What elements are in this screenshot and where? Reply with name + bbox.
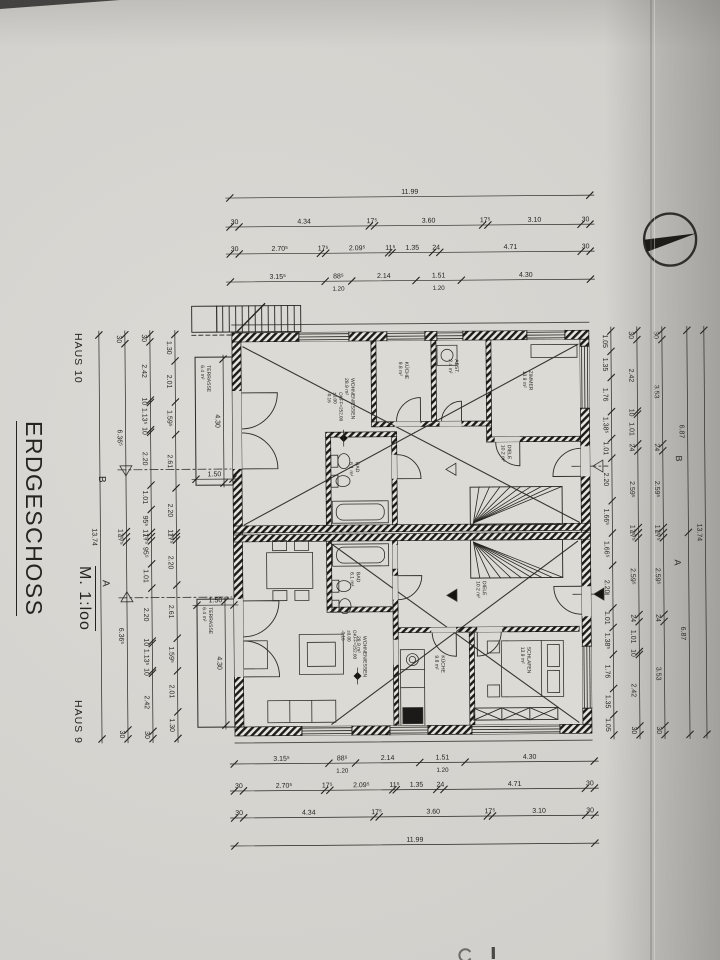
svg-text:1.20: 1.20 (332, 286, 345, 293)
svg-text:30: 30 (630, 727, 637, 735)
svg-text:10: 10 (627, 409, 634, 417)
section-arrow-a-right (594, 588, 604, 600)
svg-text:1.01: 1.01 (602, 442, 609, 456)
svg-text:3.10: 3.10 (528, 217, 542, 224)
svg-text:30: 30 (235, 810, 243, 817)
svg-text:6.1 m²: 6.1 m² (348, 462, 354, 477)
svg-text:1.01: 1.01 (629, 630, 636, 644)
svg-text:30: 30 (235, 783, 243, 790)
svg-text:10: 10 (142, 638, 149, 646)
svg-text:30: 30 (627, 331, 634, 339)
svg-text:1.35: 1.35 (410, 782, 424, 789)
svg-text:13.74: 13.74 (90, 528, 97, 546)
svg-text:3.60: 3.60 (422, 218, 436, 225)
svg-text:4.30: 4.30 (213, 414, 220, 428)
svg-text:TERRASSE: TERRASSE (205, 365, 211, 393)
svg-text:4.71: 4.71 (504, 244, 518, 251)
svg-text:10: 10 (140, 397, 147, 405)
svg-text:24: 24 (653, 443, 660, 451)
svg-text:24: 24 (432, 245, 440, 252)
north-arrow-icon (644, 213, 696, 265)
svg-text:1.30: 1.30 (168, 718, 175, 732)
svg-text:30: 30 (115, 335, 122, 343)
svg-text:DIELE: DIELE (481, 581, 487, 596)
svg-text:6.4 m²: 6.4 m² (201, 607, 207, 622)
svg-text:1.01: 1.01 (628, 422, 635, 436)
svg-text:95⁵: 95⁵ (141, 516, 148, 527)
svg-text:30: 30 (586, 780, 594, 787)
svg-text:24: 24 (654, 614, 661, 622)
svg-text:6.36⁵: 6.36⁵ (116, 429, 123, 446)
svg-text:1.05: 1.05 (601, 334, 608, 348)
svg-text:1.50: 1.50 (209, 597, 223, 604)
svg-text:3.15⁵: 3.15⁵ (269, 274, 286, 281)
svg-text:1.30: 1.30 (165, 341, 172, 355)
svg-text:2.59⁵: 2.59⁵ (653, 481, 660, 498)
svg-text:4.30: 4.30 (519, 272, 533, 279)
svg-text:10.2 m²: 10.2 m² (475, 581, 481, 598)
svg-text:10: 10 (141, 427, 148, 435)
svg-text:17⁵: 17⁵ (166, 533, 173, 544)
svg-text:17⁵: 17⁵ (141, 533, 148, 544)
svg-text:24: 24 (628, 444, 635, 452)
svg-text:30: 30 (140, 334, 147, 342)
svg-text:6.87: 6.87 (678, 425, 685, 439)
svg-text:2.59⁵: 2.59⁵ (628, 481, 635, 498)
svg-text:2.59⁵: 2.59⁵ (629, 568, 636, 585)
svg-text:11.99: 11.99 (401, 189, 418, 196)
svg-text:1.35: 1.35 (601, 358, 608, 372)
svg-text:1.66⁵: 1.66⁵ (602, 509, 609, 526)
svg-text:2.20: 2.20 (167, 556, 174, 570)
svg-text:2.01: 2.01 (165, 375, 172, 389)
svg-text:±0.00: ±0.00 (333, 392, 338, 404)
svg-text:-0.16: -0.16 (327, 392, 332, 403)
svg-text:1.13⁵: 1.13⁵ (142, 649, 149, 666)
svg-text:OKFF=252.00: OKFF=252.00 (338, 392, 343, 421)
svg-text:1.35: 1.35 (405, 245, 419, 252)
svg-text:2.59⁵: 2.59⁵ (654, 568, 661, 585)
svg-text:88⁵: 88⁵ (337, 755, 348, 762)
svg-text:1.35: 1.35 (604, 695, 611, 709)
svg-text:2.14: 2.14 (381, 755, 395, 762)
svg-text:ABST.: ABST. (453, 359, 459, 373)
svg-text:B: B (96, 476, 107, 483)
svg-text:30: 30 (582, 243, 590, 250)
svg-text:11.99: 11.99 (406, 837, 423, 844)
svg-text:2.09⁵: 2.09⁵ (349, 245, 366, 252)
svg-text:1.01: 1.01 (142, 569, 149, 583)
svg-text:2.61: 2.61 (167, 605, 174, 619)
svg-text:2.42: 2.42 (627, 369, 634, 383)
svg-text:ZIMMER: ZIMMER (527, 371, 533, 391)
external-stair (192, 303, 301, 335)
svg-text:6.4 m²: 6.4 m² (199, 365, 205, 380)
svg-text:24: 24 (436, 782, 444, 789)
svg-text:10.2 m²: 10.2 m² (500, 445, 506, 462)
svg-text:4.30: 4.30 (215, 656, 222, 670)
svg-text:OKFF=252.00: OKFF=252.00 (352, 630, 357, 659)
svg-text:2.61: 2.61 (166, 454, 173, 468)
svg-text:1.38⁵: 1.38⁵ (603, 633, 610, 650)
svg-text:30: 30 (655, 726, 662, 734)
svg-text:17⁵: 17⁵ (628, 530, 635, 541)
svg-text:2.14: 2.14 (377, 273, 391, 280)
svg-text:KÜCHE: KÜCHE (439, 655, 446, 673)
svg-text:9.8 m²: 9.8 m² (397, 362, 403, 377)
svg-text:DIELE: DIELE (506, 445, 512, 460)
svg-text:17⁵: 17⁵ (116, 534, 123, 545)
svg-text:BAD: BAD (354, 462, 360, 473)
svg-text:1.38⁵: 1.38⁵ (602, 417, 609, 434)
svg-text:3.53: 3.53 (652, 385, 659, 399)
svg-text:4.30: 4.30 (523, 754, 537, 761)
svg-text:2.42: 2.42 (140, 364, 147, 378)
page-edge-mark (459, 947, 495, 960)
svg-text:1.66⁵: 1.66⁵ (602, 541, 609, 558)
svg-text:2.4 m²: 2.4 m² (447, 359, 453, 374)
svg-text:30: 30 (586, 807, 594, 814)
svg-text:9.8 m²: 9.8 m² (433, 655, 439, 670)
svg-text:1.51: 1.51 (432, 273, 446, 280)
svg-text:BAD: BAD (355, 572, 361, 583)
svg-text:30: 30 (231, 219, 239, 226)
svg-text:KÜCHE: KÜCHE (403, 362, 410, 380)
svg-text:88⁵: 88⁵ (333, 273, 344, 280)
svg-text:2.70⁵: 2.70⁵ (276, 783, 293, 790)
svg-text:1.20: 1.20 (336, 768, 349, 775)
svg-text:6.87: 6.87 (679, 627, 686, 641)
svg-text:1.20: 1.20 (436, 767, 449, 774)
svg-text:24: 24 (629, 614, 636, 622)
svg-text:SCHLAFEN: SCHLAFEN (525, 647, 531, 674)
svg-text:2.20: 2.20 (142, 608, 149, 622)
svg-text:WOHNEN/ESSEN: WOHNEN/ESSEN (361, 636, 367, 678)
terraces (195, 357, 235, 727)
svg-text:2.42: 2.42 (143, 696, 150, 710)
svg-text:2.20: 2.20 (141, 452, 148, 466)
svg-text:95⁵: 95⁵ (142, 547, 149, 558)
floorplan-drawing: 11.99304.3417⁵3.6017⁵3.1030302.70⁵17⁵2.0… (0, 0, 720, 960)
svg-text:2.20: 2.20 (603, 580, 610, 594)
svg-text:1.59⁵: 1.59⁵ (167, 646, 174, 663)
svg-text:TERRASSE: TERRASSE (207, 607, 213, 635)
svg-text:6.1 m²: 6.1 m² (349, 572, 355, 587)
photo-corner-dark (0, 0, 120, 9)
svg-text:2.20: 2.20 (602, 473, 609, 487)
svg-text:1.13⁵: 1.13⁵ (140, 408, 147, 425)
svg-text:1.20: 1.20 (433, 285, 446, 292)
svg-text:13.9 m²: 13.9 m² (521, 371, 527, 388)
svg-text:30: 30 (582, 216, 590, 223)
svg-text:A: A (673, 559, 683, 565)
svg-text:1.59⁵: 1.59⁵ (165, 410, 172, 427)
svg-text:2.09⁵: 2.09⁵ (353, 782, 370, 789)
svg-text:10: 10 (142, 668, 149, 676)
svg-text:WOHNEN/ESSEN: WOHNEN/ESSEN (349, 378, 355, 420)
svg-text:2.70⁵: 2.70⁵ (272, 246, 289, 253)
svg-text:1.50: 1.50 (208, 471, 222, 478)
svg-text:±0.00: ±0.00 (346, 630, 351, 642)
svg-text:30: 30 (118, 731, 125, 739)
svg-text:1.05: 1.05 (604, 718, 611, 732)
svg-text:-0.16: -0.16 (341, 630, 346, 641)
svg-text:3.60: 3.60 (426, 809, 440, 816)
svg-text:1.51: 1.51 (436, 755, 450, 762)
svg-text:1.76: 1.76 (601, 388, 608, 402)
svg-text:10: 10 (629, 649, 636, 657)
svg-text:4.34: 4.34 (297, 219, 311, 226)
svg-text:30: 30 (231, 246, 239, 253)
svg-text:30: 30 (652, 331, 659, 339)
svg-text:2.42: 2.42 (630, 683, 637, 697)
svg-text:6.36⁵: 6.36⁵ (117, 628, 124, 645)
svg-text:3.53: 3.53 (654, 667, 661, 681)
svg-text:3.10: 3.10 (532, 808, 546, 815)
svg-text:3.15⁵: 3.15⁵ (273, 756, 290, 763)
svg-text:1.76: 1.76 (603, 665, 610, 679)
svg-text:13.9 m²: 13.9 m² (519, 647, 525, 664)
svg-text:30: 30 (143, 731, 150, 739)
svg-text:1.01: 1.01 (603, 611, 610, 625)
svg-text:A: A (100, 580, 111, 587)
svg-text:13.74: 13.74 (695, 524, 702, 542)
svg-text:4.71: 4.71 (508, 781, 522, 788)
svg-text:2.20: 2.20 (166, 504, 173, 518)
scanned-floorplan-page: HAUS 10 ERDGESCHOSS M. 1:loo HAUS 9 (0, 0, 720, 960)
svg-text:1.01: 1.01 (141, 491, 148, 505)
svg-text:B: B (674, 455, 684, 461)
svg-text:17⁵: 17⁵ (653, 530, 660, 541)
svg-text:2.01: 2.01 (168, 685, 175, 699)
svg-text:4.34: 4.34 (302, 810, 316, 817)
